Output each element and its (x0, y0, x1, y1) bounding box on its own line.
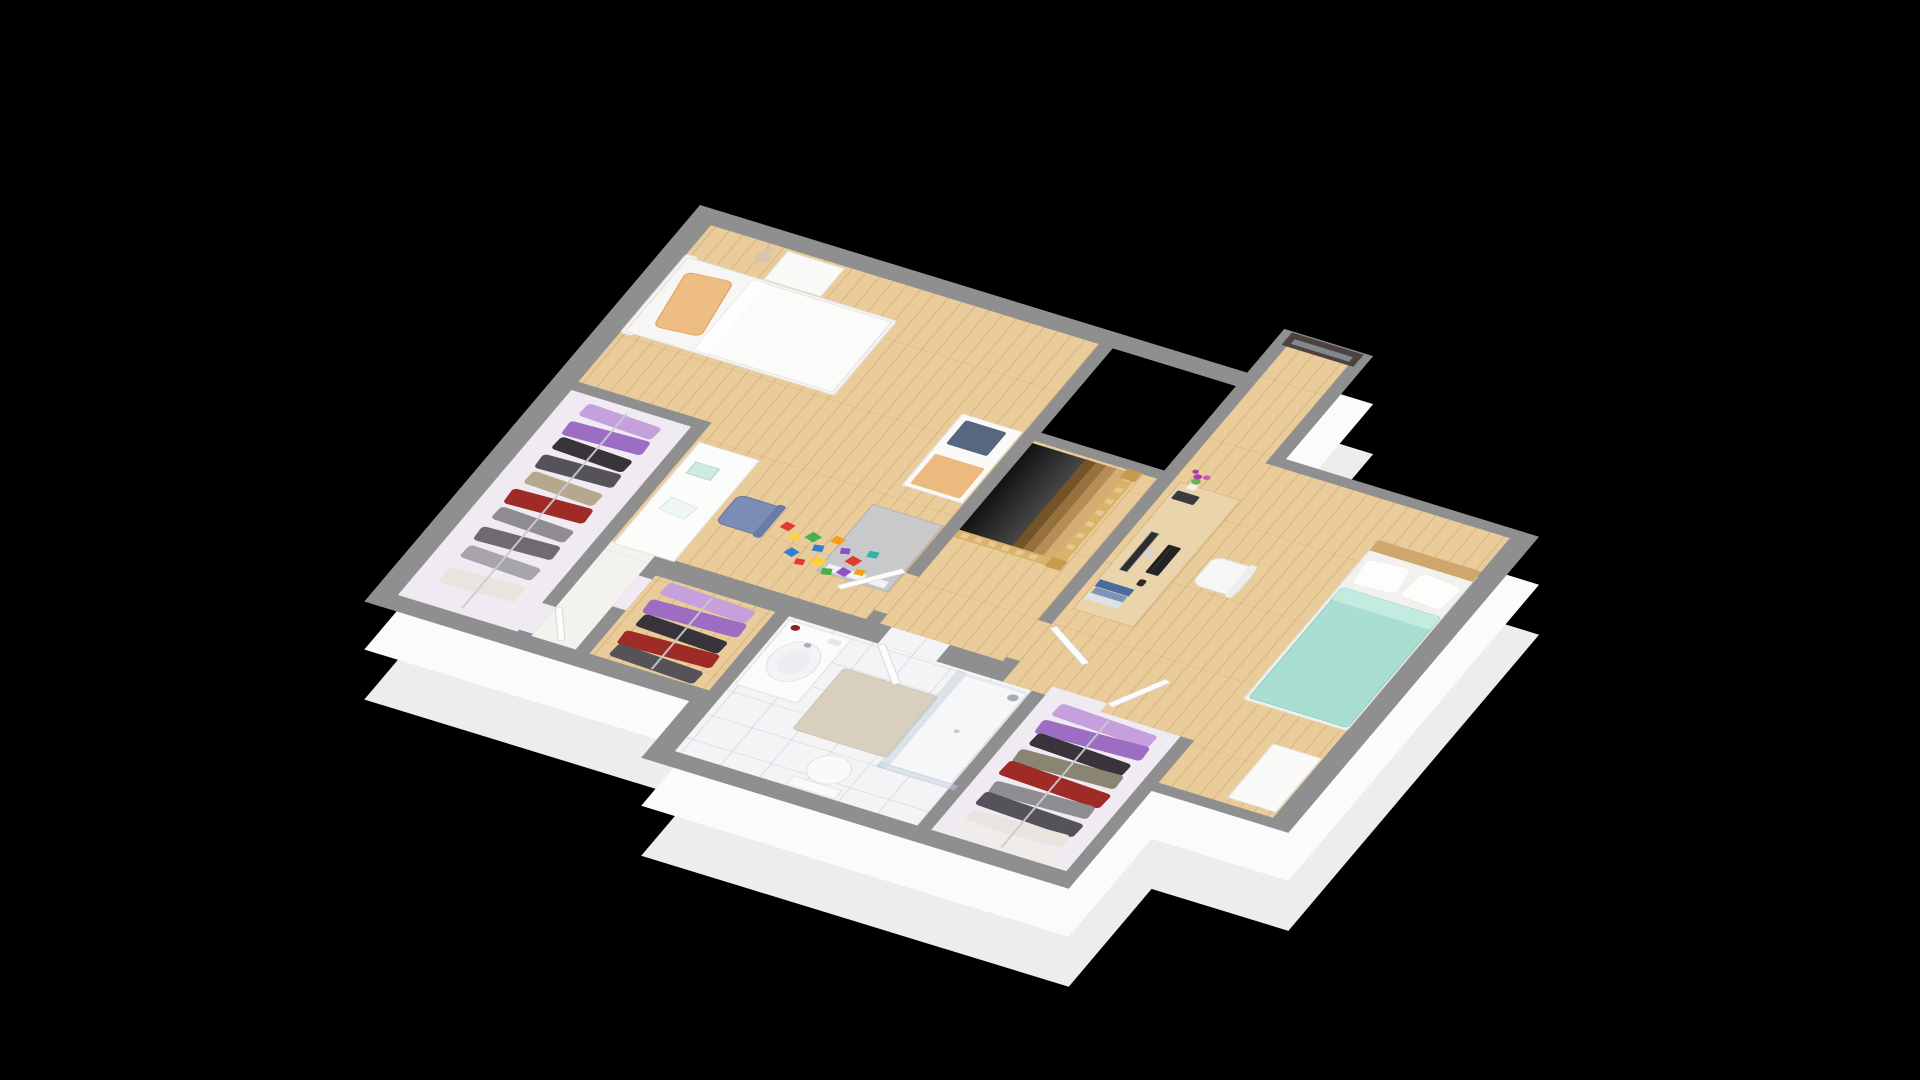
toy-block (820, 568, 832, 575)
toy-block (812, 544, 825, 552)
toy-block (840, 548, 851, 554)
floor-plan-stage (0, 0, 1920, 1080)
floor-plan-svg (0, 0, 1920, 1080)
